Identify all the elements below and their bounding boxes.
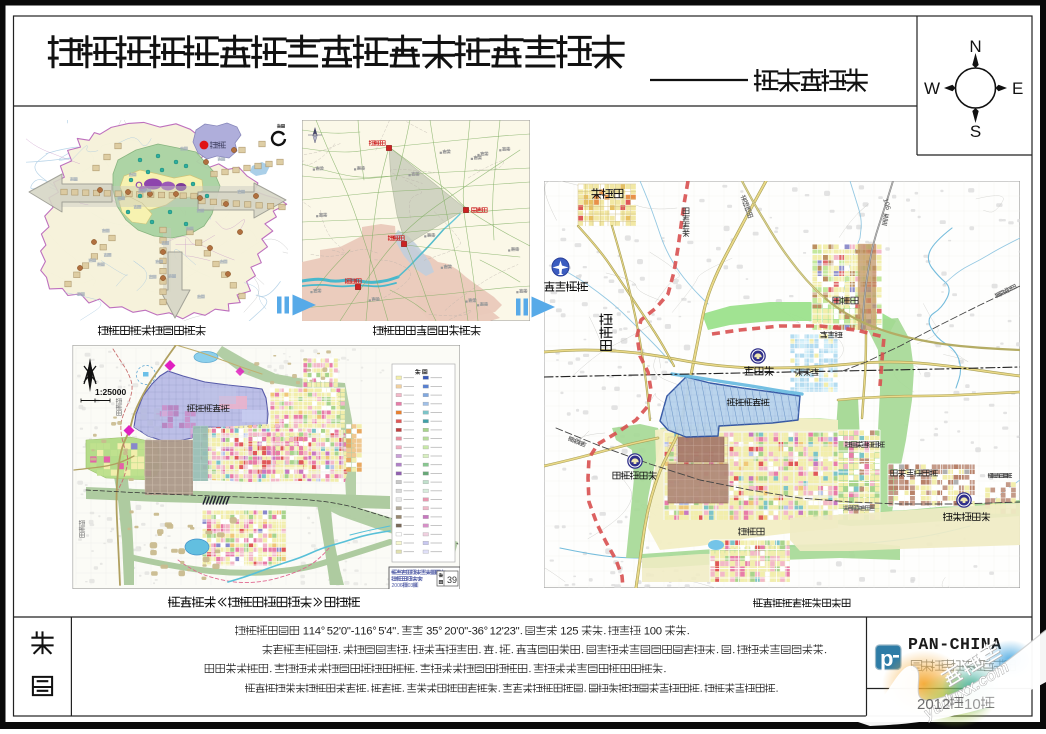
- svg-text:°: °: [372, 625, 377, 637]
- svg-text:E: E: [1012, 79, 1023, 98]
- svg-text:3: 3: [410, 583, 413, 589]
- svg-text:°: °: [484, 625, 489, 637]
- svg-text:W: W: [924, 79, 940, 98]
- svg-text:6: 6: [400, 583, 403, 589]
- svg-text:": ": [392, 625, 396, 637]
- svg-text:°: °: [321, 625, 326, 637]
- svg-text:2012: 2012: [917, 696, 950, 713]
- svg-text:°: °: [438, 625, 443, 637]
- svg-text:39: 39: [447, 575, 457, 585]
- svg-text:": ": [516, 625, 520, 637]
- svg-text:S: S: [970, 122, 981, 141]
- svg-text:1:25000: 1:25000: [95, 387, 126, 397]
- svg-text:10: 10: [964, 696, 981, 713]
- svg-text:N: N: [969, 37, 981, 56]
- svg-text:0: 0: [656, 625, 662, 637]
- svg-text:5: 5: [572, 625, 578, 637]
